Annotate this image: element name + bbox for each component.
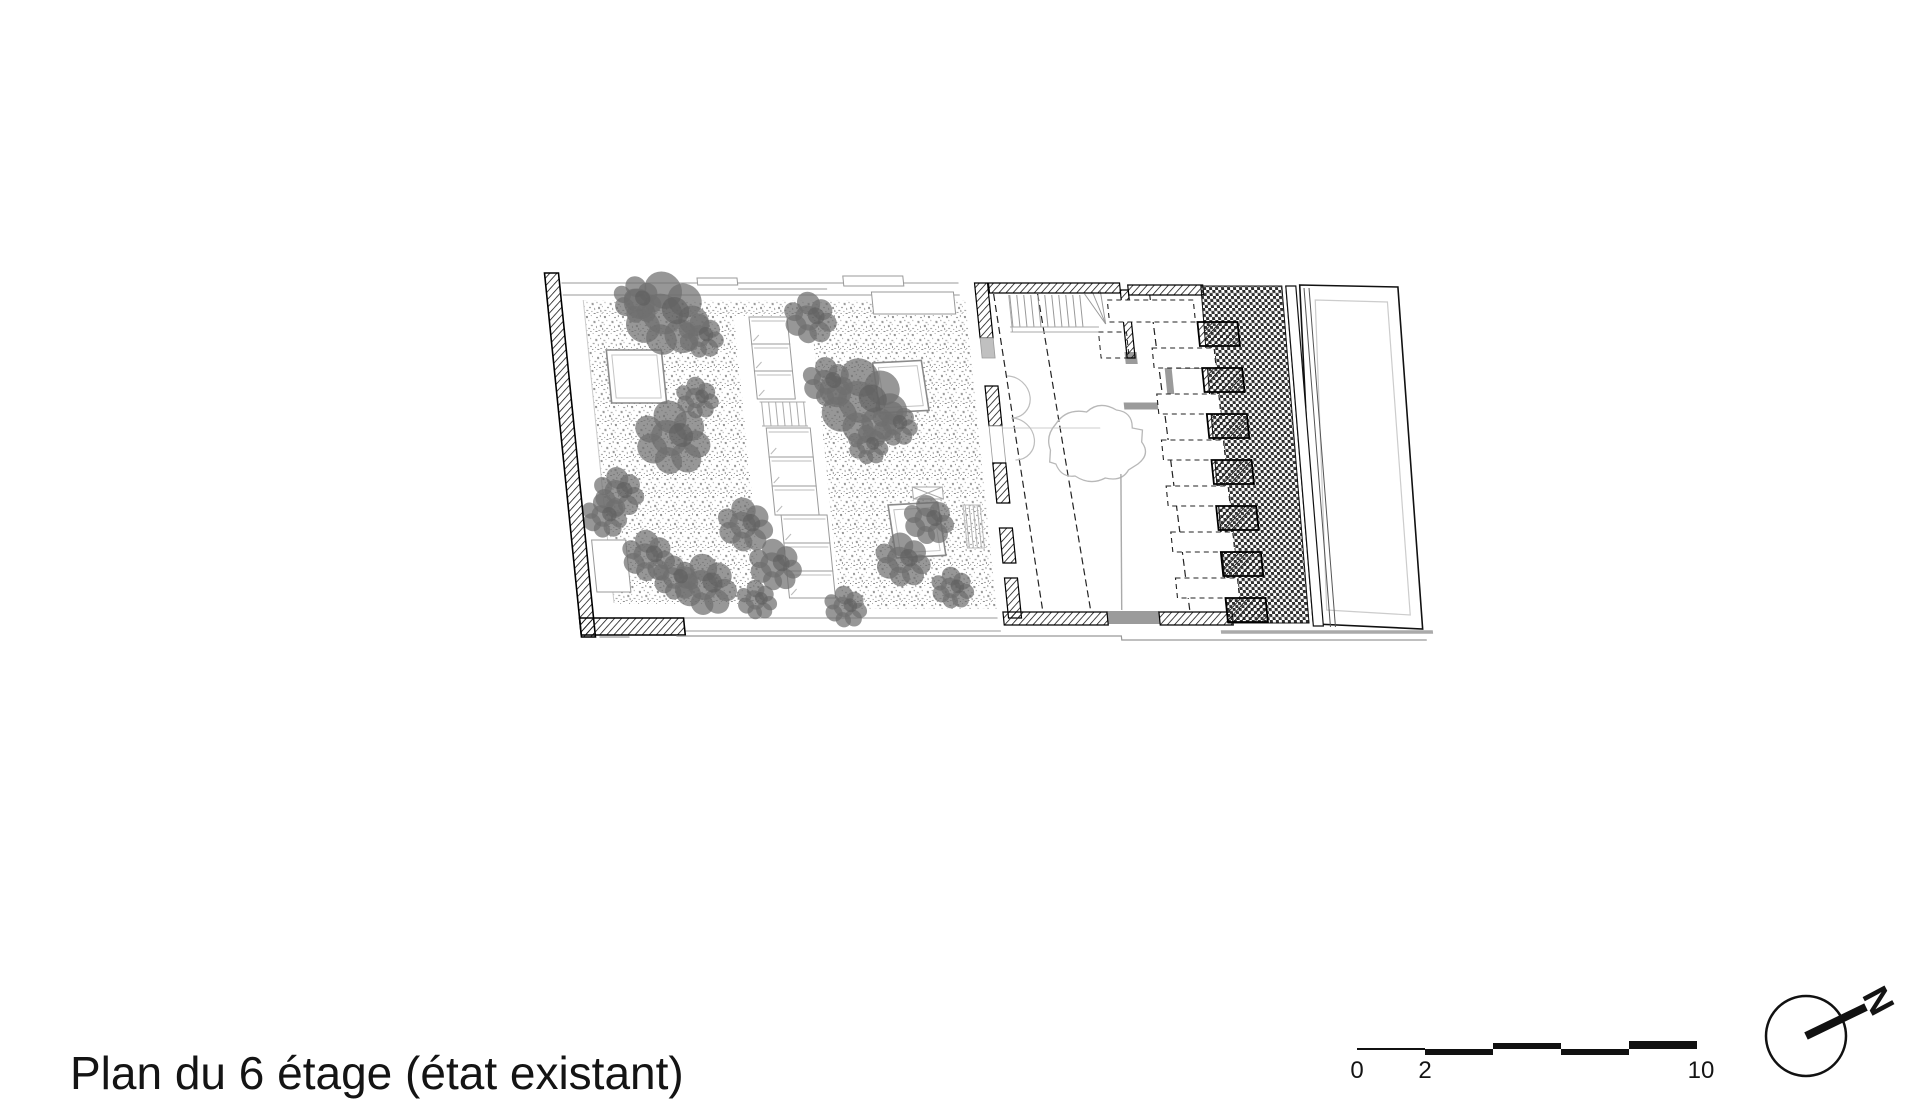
roof-planter [871, 292, 955, 314]
bottom-left-wall [580, 618, 686, 635]
top-wall [1128, 285, 1204, 295]
dormer [1152, 348, 1216, 368]
tooth [1202, 368, 1244, 392]
north-arrow: N [1766, 979, 1903, 1076]
scale-label-2: 2 [1418, 1057, 1431, 1084]
dormer [1171, 532, 1235, 552]
scale-segment [1561, 1049, 1629, 1055]
dormer [1107, 300, 1195, 322]
bottom-wall [1159, 612, 1233, 625]
tooth [1211, 460, 1253, 484]
bottom-wall [1003, 612, 1108, 625]
garden-terrace [544, 272, 1001, 638]
top-wall [989, 283, 1121, 293]
drawing-sheet: 0 2 10 N Plan du 6 étage (état existant) [0, 0, 1920, 1104]
parapet-step [843, 276, 904, 286]
dormer [1175, 578, 1239, 598]
scale-segment [1629, 1041, 1697, 1049]
tooth [1197, 322, 1239, 346]
parapet-step [697, 278, 738, 285]
dormer [1161, 440, 1225, 460]
tooth [1221, 552, 1263, 576]
sidewalk-lines [599, 636, 1426, 640]
scale-segment [1493, 1043, 1561, 1049]
dormer [1166, 486, 1230, 506]
tooth [1207, 414, 1249, 438]
north-letter: N [1854, 979, 1902, 1021]
floor-plan [544, 272, 1433, 641]
skylight-1 [606, 350, 666, 403]
scale-label-0: 0 [1350, 1057, 1363, 1084]
scale-bar: 0 2 10 [1350, 1041, 1714, 1084]
site-plan-svg: 0 2 10 N [0, 0, 1920, 1104]
scale-segment [1425, 1049, 1493, 1055]
garden-stair [760, 402, 808, 426]
scale-label-10: 10 [1688, 1057, 1715, 1084]
drawing-title: Plan du 6 étage (état existant) [70, 1046, 684, 1100]
tooth [1216, 506, 1258, 530]
gray-sill [1107, 611, 1160, 624]
tooth [1226, 598, 1268, 622]
dormer [1157, 394, 1221, 414]
